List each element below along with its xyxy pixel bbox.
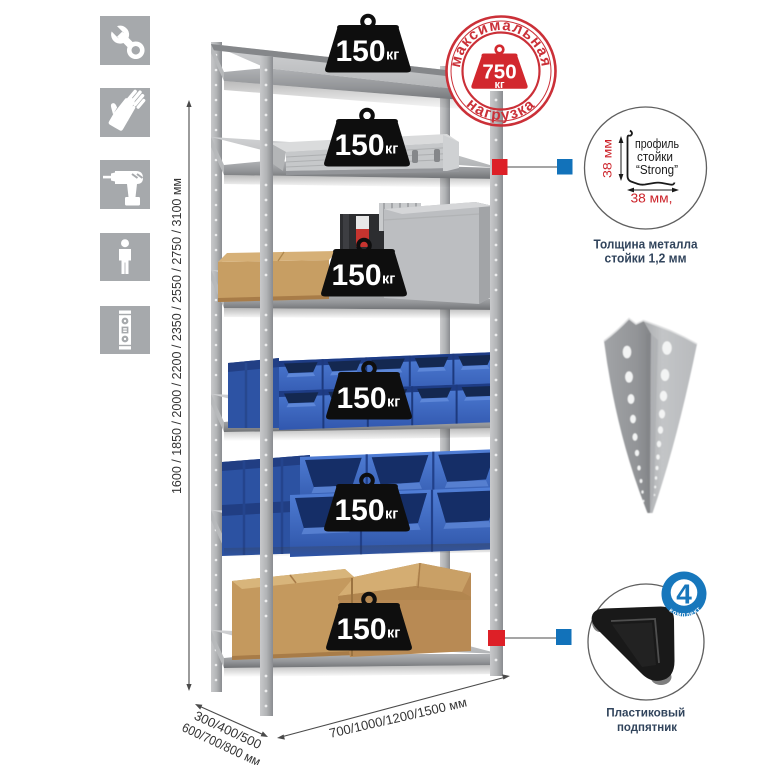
svg-text:стойки 1,2 мм: стойки 1,2 мм — [605, 251, 687, 266]
svg-text:38 мм,: 38 мм, — [631, 192, 673, 206]
svg-text:4: 4 — [676, 579, 692, 610]
svg-text:Пластиковый: Пластиковый — [606, 706, 685, 720]
svg-text:1600 / 1850 / 2000 / 2200 / 23: 1600 / 1850 / 2000 / 2200 / 2350 / 2550 … — [170, 178, 184, 494]
svg-text:Толщина металла: Толщина металла — [594, 237, 699, 252]
svg-text:подпятник: подпятник — [617, 720, 678, 734]
svg-text:“Strong”: “Strong” — [636, 162, 678, 177]
svg-text:штуки: штуки — [677, 606, 692, 611]
svg-text:38 мм: 38 мм — [603, 139, 615, 178]
svg-text:кг: кг — [494, 79, 505, 91]
